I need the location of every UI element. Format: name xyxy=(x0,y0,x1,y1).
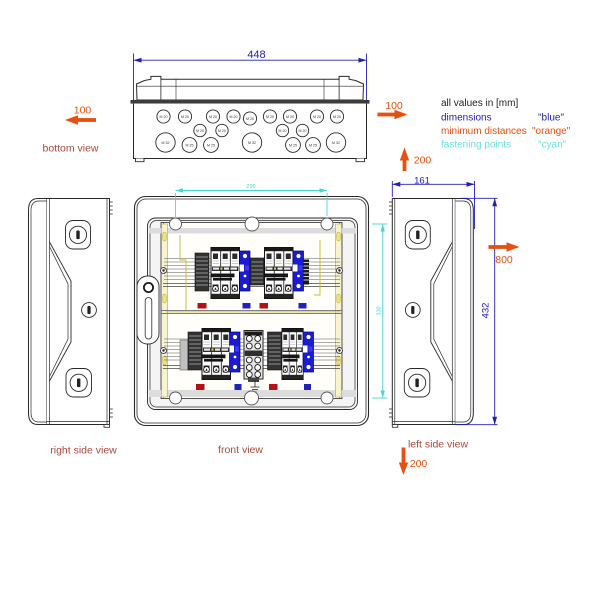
svg-text:front view: front view xyxy=(218,444,263,456)
svg-text:M 20: M 20 xyxy=(286,115,294,119)
svg-text:M 25: M 25 xyxy=(186,144,194,148)
svg-text:M 32: M 32 xyxy=(162,141,170,145)
svg-text:"cyan": "cyan" xyxy=(538,140,567,151)
svg-text:M 20: M 20 xyxy=(218,129,226,133)
svg-text:M 20: M 20 xyxy=(266,115,274,119)
svg-text:200: 200 xyxy=(410,458,428,470)
svg-text:161: 161 xyxy=(414,176,430,187)
svg-text:M 20: M 20 xyxy=(196,129,204,133)
svg-text:fastening points: fastening points xyxy=(441,140,511,151)
svg-text:M 32: M 32 xyxy=(248,141,256,145)
svg-text:432: 432 xyxy=(481,303,492,319)
svg-text:330: 330 xyxy=(377,306,383,315)
svg-text:100: 100 xyxy=(74,105,92,117)
svg-text:200: 200 xyxy=(414,155,432,167)
svg-text:left side view: left side view xyxy=(408,439,469,451)
svg-text:290: 290 xyxy=(246,184,255,190)
svg-text:M 20: M 20 xyxy=(279,129,287,133)
svg-text:M 20: M 20 xyxy=(181,115,189,119)
svg-text:M 32: M 32 xyxy=(332,141,340,145)
svg-text:right side view: right side view xyxy=(50,445,117,457)
svg-text:M 20: M 20 xyxy=(209,115,217,119)
svg-text:M 25: M 25 xyxy=(207,144,215,148)
svg-text:M 20: M 20 xyxy=(246,117,254,121)
svg-text:all values in [mm]: all values in [mm] xyxy=(441,98,518,109)
svg-text:"orange": "orange" xyxy=(532,126,571,137)
svg-text:M 20: M 20 xyxy=(160,115,168,119)
svg-text:448: 448 xyxy=(247,49,265,61)
svg-text:M 25: M 25 xyxy=(289,144,297,148)
svg-text:100: 100 xyxy=(385,100,403,112)
svg-text:800: 800 xyxy=(495,254,513,266)
svg-text:bottom view: bottom view xyxy=(42,143,98,155)
svg-text:"blue": "blue" xyxy=(538,113,564,124)
svg-text:M 20: M 20 xyxy=(333,115,341,119)
svg-text:dimensions: dimensions xyxy=(441,113,492,124)
svg-text:M 20: M 20 xyxy=(313,115,321,119)
svg-text:M 20: M 20 xyxy=(299,129,307,133)
svg-text:M 25: M 25 xyxy=(309,144,317,148)
svg-text:minimum distances: minimum distances xyxy=(441,126,527,137)
svg-text:M 20: M 20 xyxy=(230,115,238,119)
